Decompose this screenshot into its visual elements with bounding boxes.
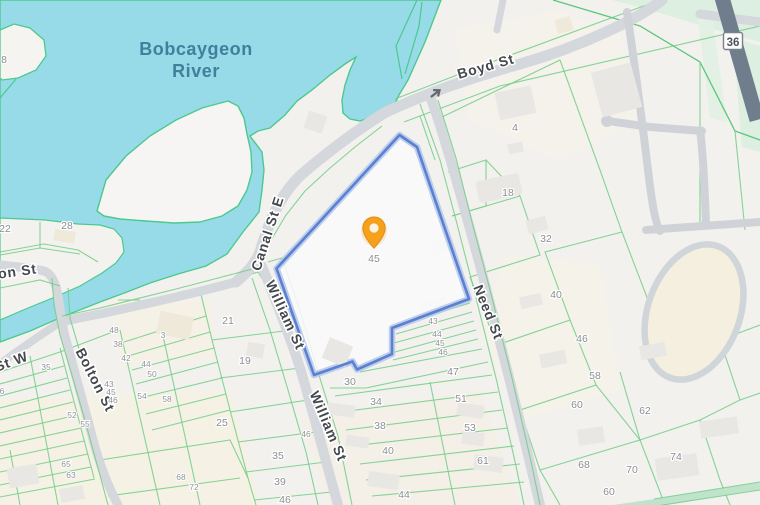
svg-text:40: 40: [382, 445, 394, 457]
svg-text:River: River: [172, 61, 220, 81]
svg-text:4: 4: [512, 122, 518, 134]
svg-text:60: 60: [603, 486, 615, 498]
svg-text:35: 35: [41, 362, 51, 372]
svg-text:60: 60: [571, 399, 583, 411]
svg-text:40: 40: [550, 289, 562, 301]
svg-text:63: 63: [66, 470, 76, 480]
svg-text:45: 45: [368, 253, 380, 265]
svg-text:68: 68: [176, 472, 186, 482]
svg-text:72: 72: [189, 482, 199, 492]
svg-text:65: 65: [61, 459, 71, 469]
svg-text:28: 28: [61, 220, 73, 232]
svg-text:51: 51: [455, 393, 467, 405]
svg-text:74: 74: [670, 451, 682, 463]
svg-text:43: 43: [428, 316, 438, 326]
svg-text:8: 8: [1, 54, 7, 66]
svg-text:50: 50: [147, 369, 157, 379]
svg-text:44: 44: [141, 359, 151, 369]
svg-text:30: 30: [344, 376, 356, 388]
svg-text:35: 35: [272, 450, 284, 462]
svg-text:46: 46: [279, 494, 291, 505]
svg-text:34: 34: [370, 396, 382, 408]
svg-text:62: 62: [639, 405, 651, 417]
svg-text:48: 48: [109, 325, 119, 335]
svg-text:61: 61: [477, 455, 489, 467]
svg-text:21: 21: [222, 315, 234, 327]
svg-text:36: 36: [727, 37, 740, 49]
svg-text:70: 70: [626, 464, 638, 476]
svg-text:46: 46: [438, 347, 448, 357]
svg-text:55: 55: [80, 419, 90, 429]
svg-text:53: 53: [464, 422, 476, 434]
svg-text:25: 25: [216, 417, 228, 429]
svg-text:38: 38: [374, 420, 386, 432]
svg-text:19: 19: [239, 355, 251, 367]
svg-text:32: 32: [540, 233, 552, 245]
svg-text:18: 18: [502, 187, 514, 199]
svg-text:44: 44: [398, 489, 410, 501]
svg-text:3: 3: [161, 330, 166, 340]
svg-text:68: 68: [578, 459, 590, 471]
svg-text:46: 46: [301, 429, 311, 439]
svg-text:39: 39: [274, 476, 286, 488]
svg-text:54: 54: [137, 391, 147, 401]
svg-text:58: 58: [589, 370, 601, 382]
svg-text:47: 47: [447, 366, 459, 378]
svg-text:22: 22: [0, 223, 11, 235]
svg-text:42: 42: [121, 353, 131, 363]
svg-text:38: 38: [113, 339, 123, 349]
svg-text:6: 6: [0, 386, 5, 396]
svg-text:46: 46: [576, 333, 588, 345]
svg-text:52: 52: [67, 410, 77, 420]
svg-text:Bobcaygeon: Bobcaygeon: [139, 39, 253, 59]
svg-text:46: 46: [108, 395, 118, 405]
svg-text:58: 58: [162, 394, 172, 404]
